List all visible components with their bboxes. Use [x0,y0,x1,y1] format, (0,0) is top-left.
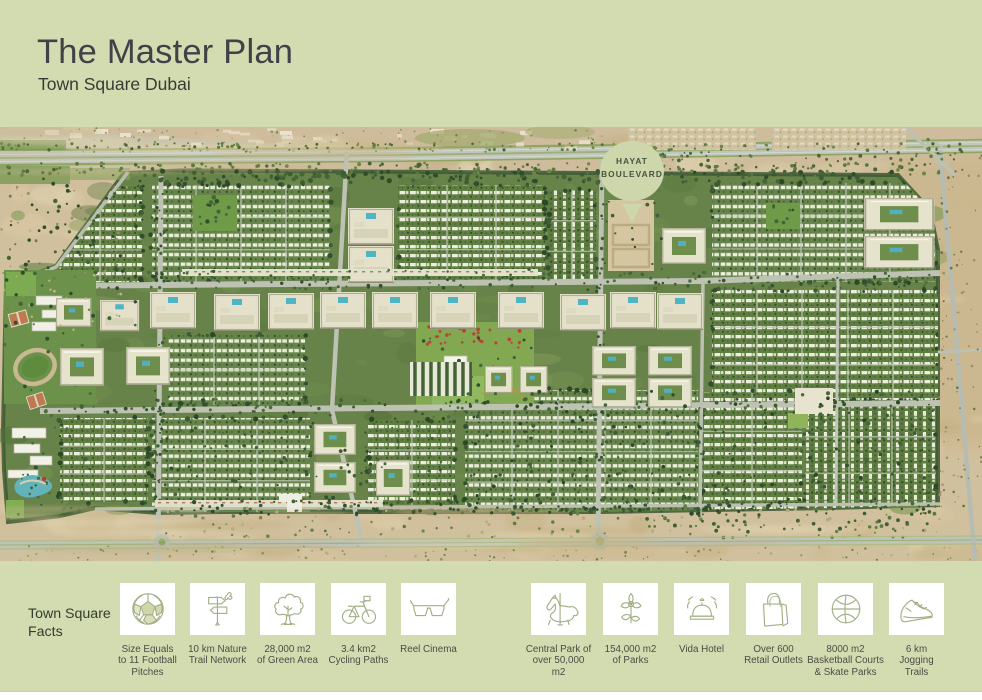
svg-text:BOULEVARD: BOULEVARD [601,169,663,179]
svg-text:HAYAT: HAYAT [616,156,648,166]
